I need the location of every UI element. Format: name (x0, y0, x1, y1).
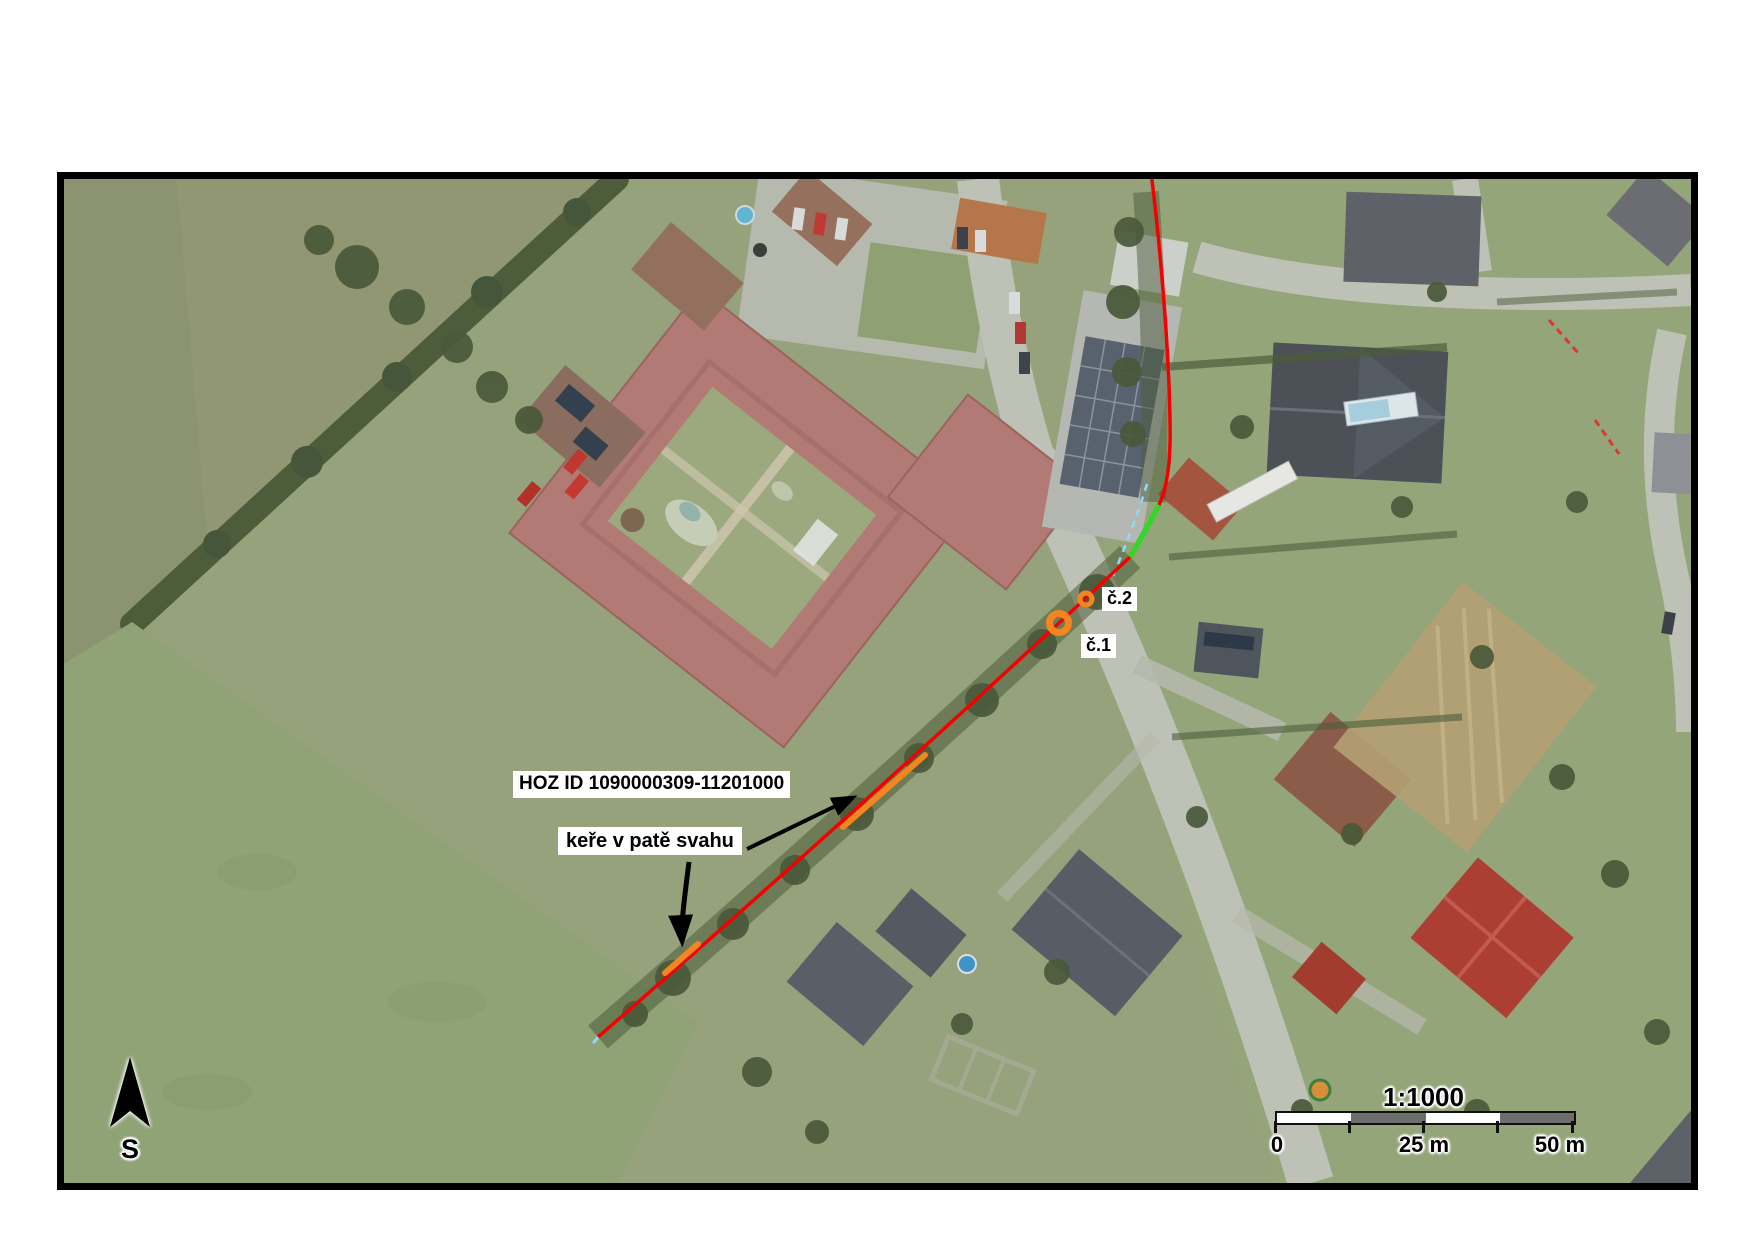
scale-bar-strip (1275, 1111, 1576, 1125)
scale-label-0: 0 (1260, 1132, 1294, 1158)
scale-label-50m: 50 m (1522, 1132, 1598, 1158)
map-overlay (64, 179, 1691, 1183)
scale-segment (1500, 1113, 1574, 1123)
orange-segment-upper (843, 755, 925, 827)
marker-c2-label: č.2 (1102, 587, 1137, 611)
orange-segment-lower (665, 944, 698, 973)
scale-tick (1496, 1121, 1499, 1133)
map-sheet: HOZ ID 1090000309-11201000 keře v patě s… (0, 0, 1754, 1240)
scale-segment (1351, 1113, 1425, 1123)
scale-segment (1426, 1113, 1500, 1123)
hoz-line-red-upper (1151, 179, 1170, 505)
north-arrow-label: S (103, 1134, 157, 1165)
annotation-arrow-lower (682, 862, 689, 940)
hoz-id-label: HOZ ID 1090000309-11201000 (513, 771, 790, 798)
scale-tick (1348, 1121, 1351, 1133)
scale-segment (1277, 1113, 1351, 1123)
scale-label-25m: 25 m (1388, 1132, 1460, 1158)
map-frame: HOZ ID 1090000309-11201000 keře v patě s… (57, 172, 1698, 1190)
north-arrow: S (103, 1055, 157, 1141)
north-arrow-icon (104, 1055, 156, 1131)
marker-c1-label: č.1 (1081, 634, 1116, 658)
kere-label: keře v patě svahu (558, 827, 742, 855)
hoz-line-green-segment (1130, 505, 1159, 557)
scale-bar: 1:1000 0 25 m 50 m (1244, 1082, 1614, 1162)
water-dashed-line (1113, 484, 1147, 576)
scale-ratio: 1:1000 (1275, 1082, 1572, 1113)
annotation-arrow-upper (747, 798, 852, 849)
